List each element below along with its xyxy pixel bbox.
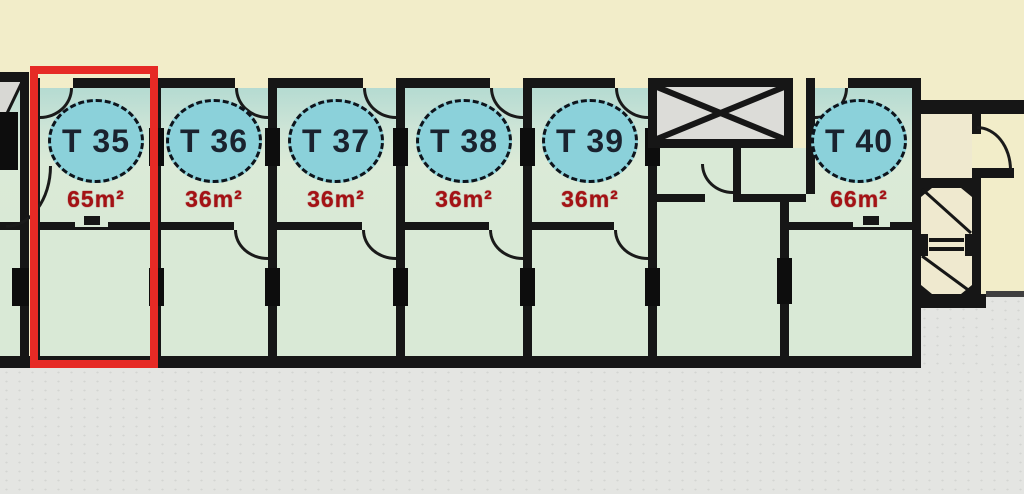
room xyxy=(789,222,912,356)
wall xyxy=(277,78,363,88)
door-swing-icon xyxy=(977,126,1012,170)
wall xyxy=(912,178,981,188)
wall xyxy=(972,178,981,304)
wall xyxy=(405,222,489,230)
wall xyxy=(912,100,1024,114)
unit-label: T 37 xyxy=(302,123,370,160)
unit-badge-t36[interactable]: T 36 xyxy=(166,99,262,183)
ground xyxy=(0,368,1024,494)
selected-unit-highlight xyxy=(30,66,158,368)
wall xyxy=(912,294,986,308)
door-threshold xyxy=(863,216,879,225)
column xyxy=(0,112,18,170)
unit-area-t37: 36m² xyxy=(276,186,396,213)
elevator-shaft-icon xyxy=(648,78,793,148)
curb-line xyxy=(986,291,1024,297)
unit-label: T 38 xyxy=(430,123,498,160)
column xyxy=(520,268,535,306)
unit-label: T 40 xyxy=(825,123,893,160)
wall xyxy=(161,222,234,230)
wall xyxy=(789,222,853,230)
column xyxy=(777,258,792,304)
wall xyxy=(912,78,921,368)
unit-label: T 36 xyxy=(180,123,248,160)
column xyxy=(393,268,408,306)
wall xyxy=(890,222,912,230)
wall xyxy=(523,78,532,368)
column xyxy=(265,268,280,306)
wall xyxy=(848,78,912,88)
unit-area-t40: 66m² xyxy=(799,186,919,213)
wall xyxy=(733,148,741,202)
wall xyxy=(405,78,490,88)
wall xyxy=(657,194,705,202)
wall xyxy=(741,194,806,202)
unit-area-t36: 36m² xyxy=(154,186,274,213)
unit-label: T 39 xyxy=(556,123,624,160)
column xyxy=(12,268,29,306)
wall xyxy=(277,222,362,230)
column xyxy=(520,128,535,166)
column xyxy=(645,268,660,306)
unit-badge-t38[interactable]: T 38 xyxy=(416,99,512,183)
door-threshold xyxy=(853,227,890,230)
unit-badge-t40[interactable]: T 40 xyxy=(811,99,907,183)
unit-area-t38: 36m² xyxy=(404,186,524,213)
wall xyxy=(396,78,405,368)
column xyxy=(265,128,280,166)
wall xyxy=(532,222,614,230)
wall xyxy=(532,78,615,88)
floorplan-canvas: T 35 T 36 T 37 T 38 T 39 T 40 65m² 36m² … xyxy=(0,0,1024,494)
entry-vestibule xyxy=(921,114,972,178)
unit-badge-t37[interactable]: T 37 xyxy=(288,99,384,183)
unit-area-t39: 36m² xyxy=(530,186,650,213)
ground xyxy=(986,297,1024,368)
unit-badge-t39[interactable]: T 39 xyxy=(542,99,638,183)
staircase-icon xyxy=(921,188,972,294)
wall xyxy=(161,78,235,88)
wall xyxy=(268,78,277,368)
column xyxy=(393,128,408,166)
